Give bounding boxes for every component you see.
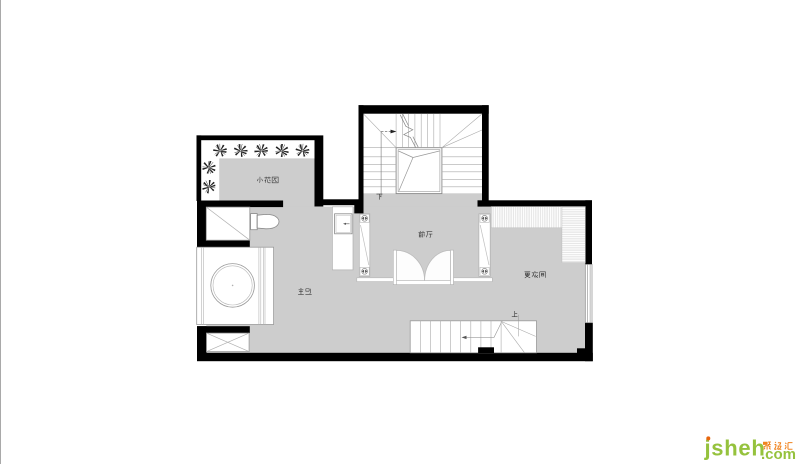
svg-text:.com: .com xyxy=(761,446,796,463)
svg-text:jsheh: jsheh xyxy=(704,436,766,461)
